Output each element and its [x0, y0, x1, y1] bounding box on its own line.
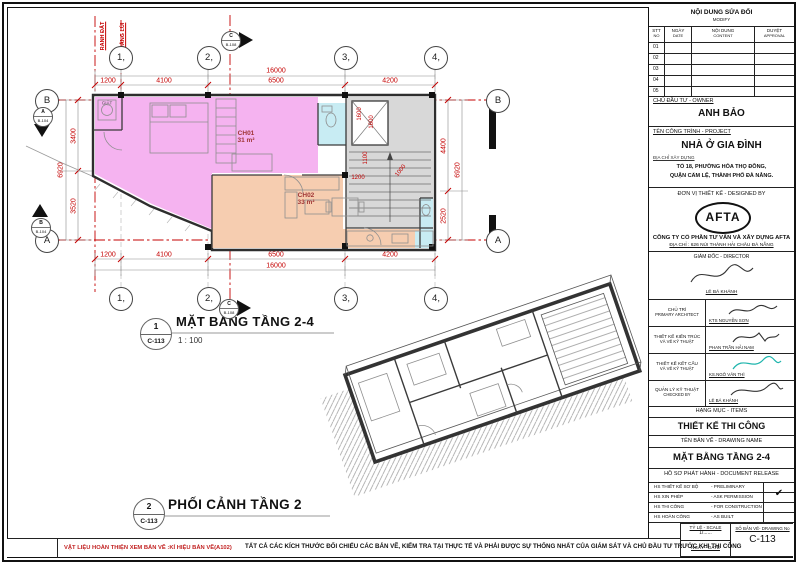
dim-inner-1100: 1100 [363, 152, 369, 165]
note-center: TẤT CẢ CÁC KÍCH THƯỚC ĐỐI CHIẾU CÁC BẢN … [245, 544, 683, 551]
dim-inner-1600a: 1600 [357, 107, 363, 120]
drawing-name-label-row: TÊN BẢN VẼ - DRAWING NAME [649, 436, 794, 448]
drawing-name-value: MẶT BẰNG TẦNG 2-4 [649, 453, 794, 463]
items-label: HẠNG MỤC - ITEMS [649, 409, 794, 415]
project-address-1: TỔ 18, PHƯỜNG HÒA THỌ ĐÔNG, [649, 165, 794, 171]
director-section: GIÁM ĐỐC - DIRECTOR LÊ BÁ KHÁNH [649, 252, 794, 300]
project-label: TÊN CÔNG TRÌNH - PROJECT [653, 130, 731, 136]
modify-row-01: 01 [653, 45, 659, 50]
owner-section: CHỦ ĐẦU TƯ - OWNER ANH BẢO [649, 97, 794, 127]
staff-row-3: THIẾT KẾ KẾT CẤU VÀ VẼ KỸ THUẬT KS.NGÔ V… [649, 354, 794, 381]
boundary-label-ranh-dat: RANH ĐẤT [101, 22, 107, 51]
release-row-2: HS XIN PHÉP - ASK PERMISSION [649, 493, 794, 503]
bottom-note-bar: VẬT LIỆU HOÀN THIỆN XEM BẢN VẼ :KÍ HIỆU … [7, 538, 680, 557]
modify-subtitle: MODIFY [649, 18, 794, 23]
grid-bubble-B-right: B [486, 89, 510, 113]
dim-inner-1600b: 1600 [369, 115, 375, 128]
modify-table: NỘI DUNG SỬA ĐỔI MODIFY STT NO NGÀY DATE… [649, 7, 794, 97]
plan-title: MẶT BẰNG TẦNG 2-4 [176, 315, 314, 329]
items-value-row: THIẾT KẾ THI CÔNG [649, 418, 794, 436]
room-label-ch01: CH01 31 m² [238, 131, 255, 145]
dim-top-3: 6500 [268, 77, 284, 84]
section-marker-a-left: A B-104 [33, 107, 53, 127]
title-block: NỘI DUNG SỬA ĐỔI MODIFY STT NO NGÀY DATE… [648, 7, 793, 557]
dim-left-total: 6920 [57, 162, 64, 178]
dim-top-total: 16000 [266, 67, 285, 74]
project-name: NHÀ Ở GIA ĐÌNH [649, 141, 794, 152]
designer-label: ĐƠN VỊ THIẾT KẾ - DESIGNED BY [649, 192, 794, 198]
grid-bubble-4-bottom: 4, [424, 287, 448, 311]
afta-logo: AFTA [695, 202, 751, 234]
project-address-label: ĐỊA CHỈ XÂY DỰNG [653, 156, 695, 161]
items-value: THIẾT KẾ THI CÔNG [649, 422, 794, 431]
grid-bubble-3-bottom: 3, [334, 287, 358, 311]
staff-signature-4 [729, 382, 785, 399]
drawing-sheet: RANH ĐẤT KHOẢNG LÙI 1, 2, 3, 4, 1, 2, 3,… [0, 0, 800, 566]
dim-left-2: 3520 [70, 198, 77, 214]
dim-bot-1: 1200 [100, 251, 116, 258]
dim-bot-4: 4200 [382, 251, 398, 258]
designer-company: CÔNG TY CỔ PHẦN TƯ VẤN VÀ XÂY DỰNG AFTA [649, 235, 794, 241]
director-signature [687, 262, 757, 288]
staff-signature-1 [727, 302, 779, 318]
dim-right-1: 4400 [440, 138, 447, 154]
staff-name-3: KS.NGÔ VĂN THÌ [709, 373, 745, 378]
dim-inner-1200: 1200 [351, 175, 364, 181]
release-label: HỒ SƠ PHÁT HÀNH - DOCUMENT RELEASE [649, 472, 794, 478]
release-row-4: HS HOÀN CÔNG - AS BUILT [649, 513, 794, 523]
staff-row-2: THIẾT KẾ KIẾN TRÚC VÀ VẼ KỸ THUẬT PHAN T… [649, 327, 794, 354]
dim-bot-3: 6500 [268, 251, 284, 258]
owner-name: ANH BẢO [649, 109, 794, 120]
modify-row-04: 04 [653, 78, 659, 83]
project-section: TÊN CÔNG TRÌNH - PROJECT NHÀ Ở GIA ĐÌNH … [649, 127, 794, 188]
note-left: VẬT LIỆU HOÀN THIỆN XEM BẢN VẼ :KÍ HIỆU … [64, 545, 232, 551]
staff-row-1: CHỦ TRÌ PRIMARY ARCHITECT KTS NGUYỄN SƠN [649, 300, 794, 327]
dim-left-1: 3400 [70, 128, 77, 144]
dim-top-2: 4100 [156, 77, 172, 84]
grid-bubble-A-right: A [486, 229, 510, 253]
drawing-name-label: TÊN BẢN VẼ - DRAWING NAME [649, 439, 794, 445]
project-address-2: QUẬN CẨM LỆ, THÀNH PHỐ ĐÀ NẴNG. [649, 174, 794, 180]
release-row-1: HS THIẾT KẾ SƠ BỘ - PRELIMINARY ✔ [649, 483, 794, 493]
designer-section: ĐƠN VỊ THIẾT KẾ - DESIGNED BY AFTA CÔNG … [649, 188, 794, 252]
persp-ref-circle: 2 C-113 [133, 498, 165, 530]
section-marker-c-bottom: C B-108 [219, 299, 239, 319]
dim-right-2: 2520 [440, 208, 447, 224]
release-header: HỒ SƠ PHÁT HÀNH - DOCUMENT RELEASE [649, 469, 794, 483]
staff-row-4: QUẢN LÝ KỸ THUẬT CHECKED BY LÊ BÁ KHÁNH [649, 381, 794, 407]
dim-bot-2: 4100 [156, 251, 172, 258]
staff-name-4: LÊ BÁ KHÁNH [709, 399, 738, 404]
staff-name-1: KTS NGUYỄN SƠN [709, 319, 749, 324]
dim-top-4: 4200 [382, 77, 398, 84]
release-row-3: HS THI CÔNG - FOR CONSTRUCTION [649, 503, 794, 513]
modify-row-02: 02 [653, 56, 659, 61]
director-label: GIÁM ĐỐC - DIRECTOR [649, 255, 794, 260]
grid-bubble-2-top: 2, [197, 46, 221, 70]
plan-scale: 1 : 100 [178, 337, 202, 345]
building-plan [93, 92, 435, 250]
perspective-linework [321, 275, 644, 497]
section-marker-c-top: C B-108 [221, 31, 241, 51]
grid-bubble-1-bottom: 1, [109, 287, 133, 311]
scale-date-number-box: TỶ LỆ - SCALE 1/...... NGÀY - DATE SỐ BẢ… [680, 523, 793, 557]
owner-label: CHỦ ĐẦU TƯ - OWNER [653, 99, 714, 105]
grid-bubble-3-top: 3, [334, 46, 358, 70]
drawing-name-value-row: MẶT BẰNG TẦNG 2-4 [649, 448, 794, 469]
drawing-no-label: SỐ BẢN VẼ- DRAWING No [731, 526, 794, 531]
grid-bubble-4-top: 4, [424, 46, 448, 70]
modify-row-05: 05 [653, 89, 659, 94]
dim-right-total: 6920 [454, 162, 461, 178]
scale-value: 1/...... [681, 530, 730, 536]
staff-name-2: PHAN TRẦN HẢI NAM [709, 346, 754, 351]
section-marker-b-left: B B-104 [31, 218, 51, 238]
room-label-giat: GIẶT [102, 102, 113, 107]
staff-signature-3 [731, 355, 783, 373]
director-name: LÊ BÁ KHÁNH [649, 290, 794, 295]
dim-bot-total: 16000 [266, 262, 285, 269]
room-label-ch02: CH02 33 m² [298, 193, 315, 207]
dim-top-1: 1200 [100, 77, 116, 84]
designer-address: ĐỊA CHỈ : 626 NÚI THÀNH HẢI CHÂU ĐÀ NẴNG [649, 243, 794, 248]
plan-ref-circle: 1 C-113 [140, 318, 172, 350]
grid-bubble-1-top: 1, [109, 46, 133, 70]
grid-bubble-2-bottom: 2, [197, 287, 221, 311]
persp-title: PHỐI CẢNH TẦNG 2 [168, 498, 302, 512]
modify-row-03: 03 [653, 67, 659, 72]
staff-signature-2 [729, 329, 781, 345]
items-label-row: HẠNG MỤC - ITEMS [649, 407, 794, 418]
modify-title: NỘI DUNG SỬA ĐỔI [649, 10, 794, 17]
